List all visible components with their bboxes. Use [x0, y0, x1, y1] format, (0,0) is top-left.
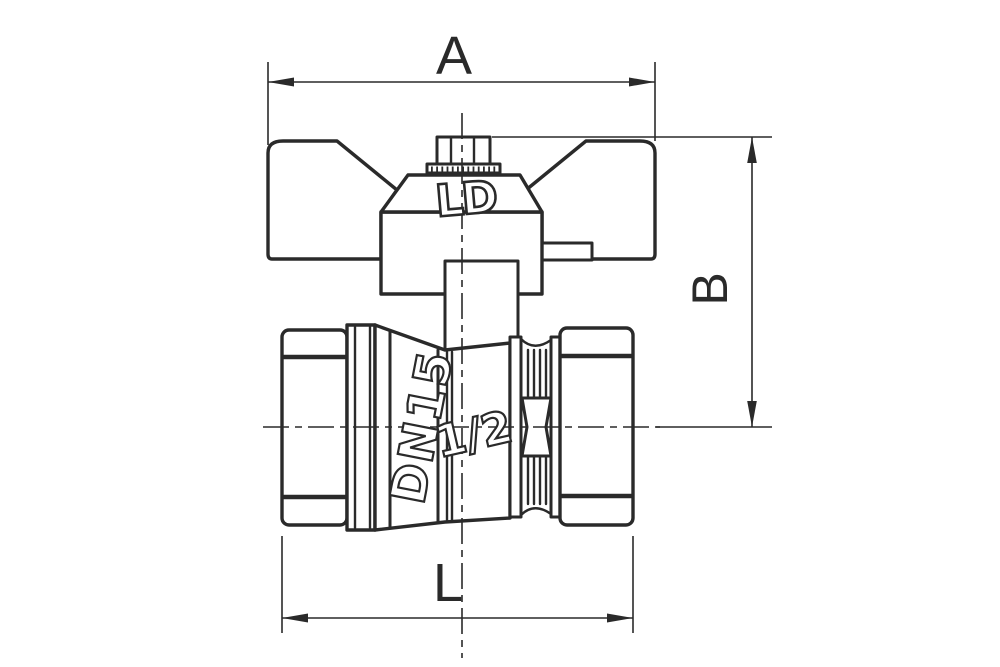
dimension-l: L: [282, 536, 633, 633]
handle-hub-notch: [445, 261, 518, 296]
union-top-curve: [521, 339, 551, 346]
union-bottom-curve: [521, 508, 551, 515]
dim-a-label: A: [436, 26, 472, 86]
dim-l-arrow-left: [282, 614, 308, 623]
dim-b-label: B: [682, 272, 738, 305]
technical-drawing-page: DN15 1/2 LD A B L: [0, 0, 1000, 667]
dim-b-arrow-bottom: [747, 401, 757, 427]
handle-left-wing: [268, 141, 397, 259]
valve-drawing-canvas: DN15 1/2 LD A B L: [0, 0, 1000, 667]
dim-b-arrow-top: [747, 137, 757, 163]
dim-a-arrow-right: [629, 78, 655, 87]
dim-a-arrow-left: [268, 78, 294, 87]
handle-right-wing: [526, 141, 655, 259]
dim-l-label: L: [433, 553, 463, 613]
dim-l-arrow-right: [607, 614, 633, 623]
handle-logo-text: LD: [433, 171, 498, 227]
stem-nut: [437, 137, 490, 164]
